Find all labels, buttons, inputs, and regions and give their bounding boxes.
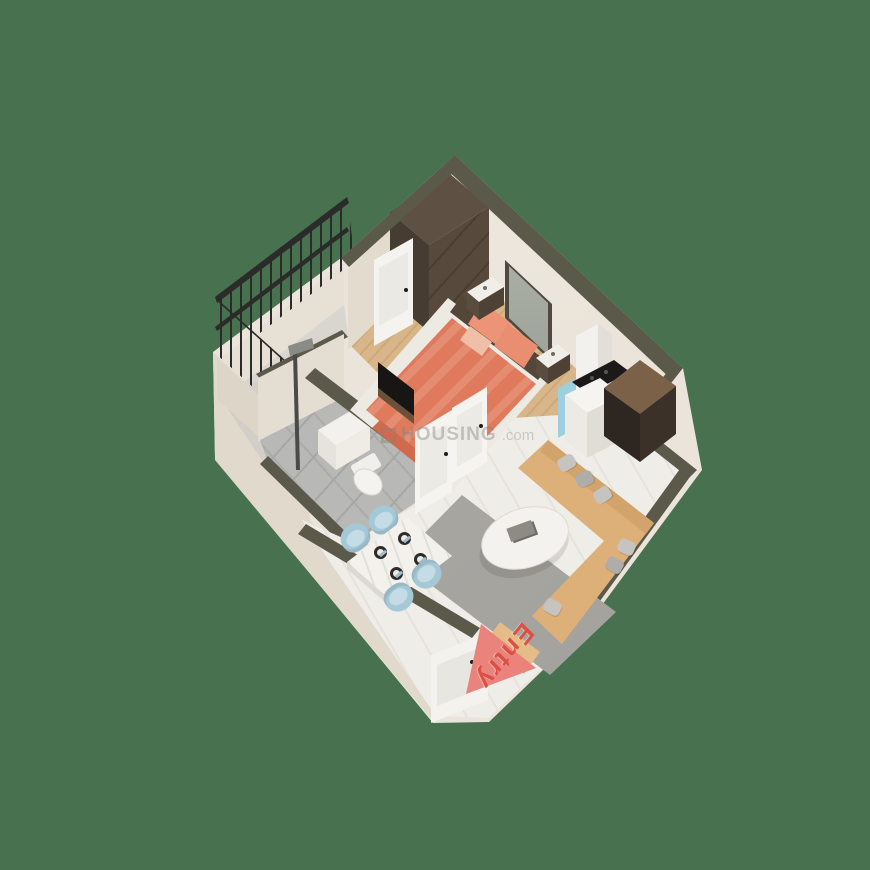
floor-plan-render: Entry HOUSING .com	[0, 0, 870, 870]
place-setting	[390, 567, 403, 580]
cooktop-burner	[604, 370, 608, 374]
place-setting	[374, 546, 387, 559]
bathroom-door-panel	[0, 0, 870, 870]
bedroom-door-handle	[479, 424, 483, 428]
place-setting	[398, 532, 411, 545]
bathroom-door-handle	[444, 452, 448, 456]
cooktop-burner	[590, 376, 594, 380]
nightstand-decor	[483, 286, 487, 290]
nightstand-decor	[551, 352, 555, 356]
balcony-door-handle	[404, 288, 408, 292]
